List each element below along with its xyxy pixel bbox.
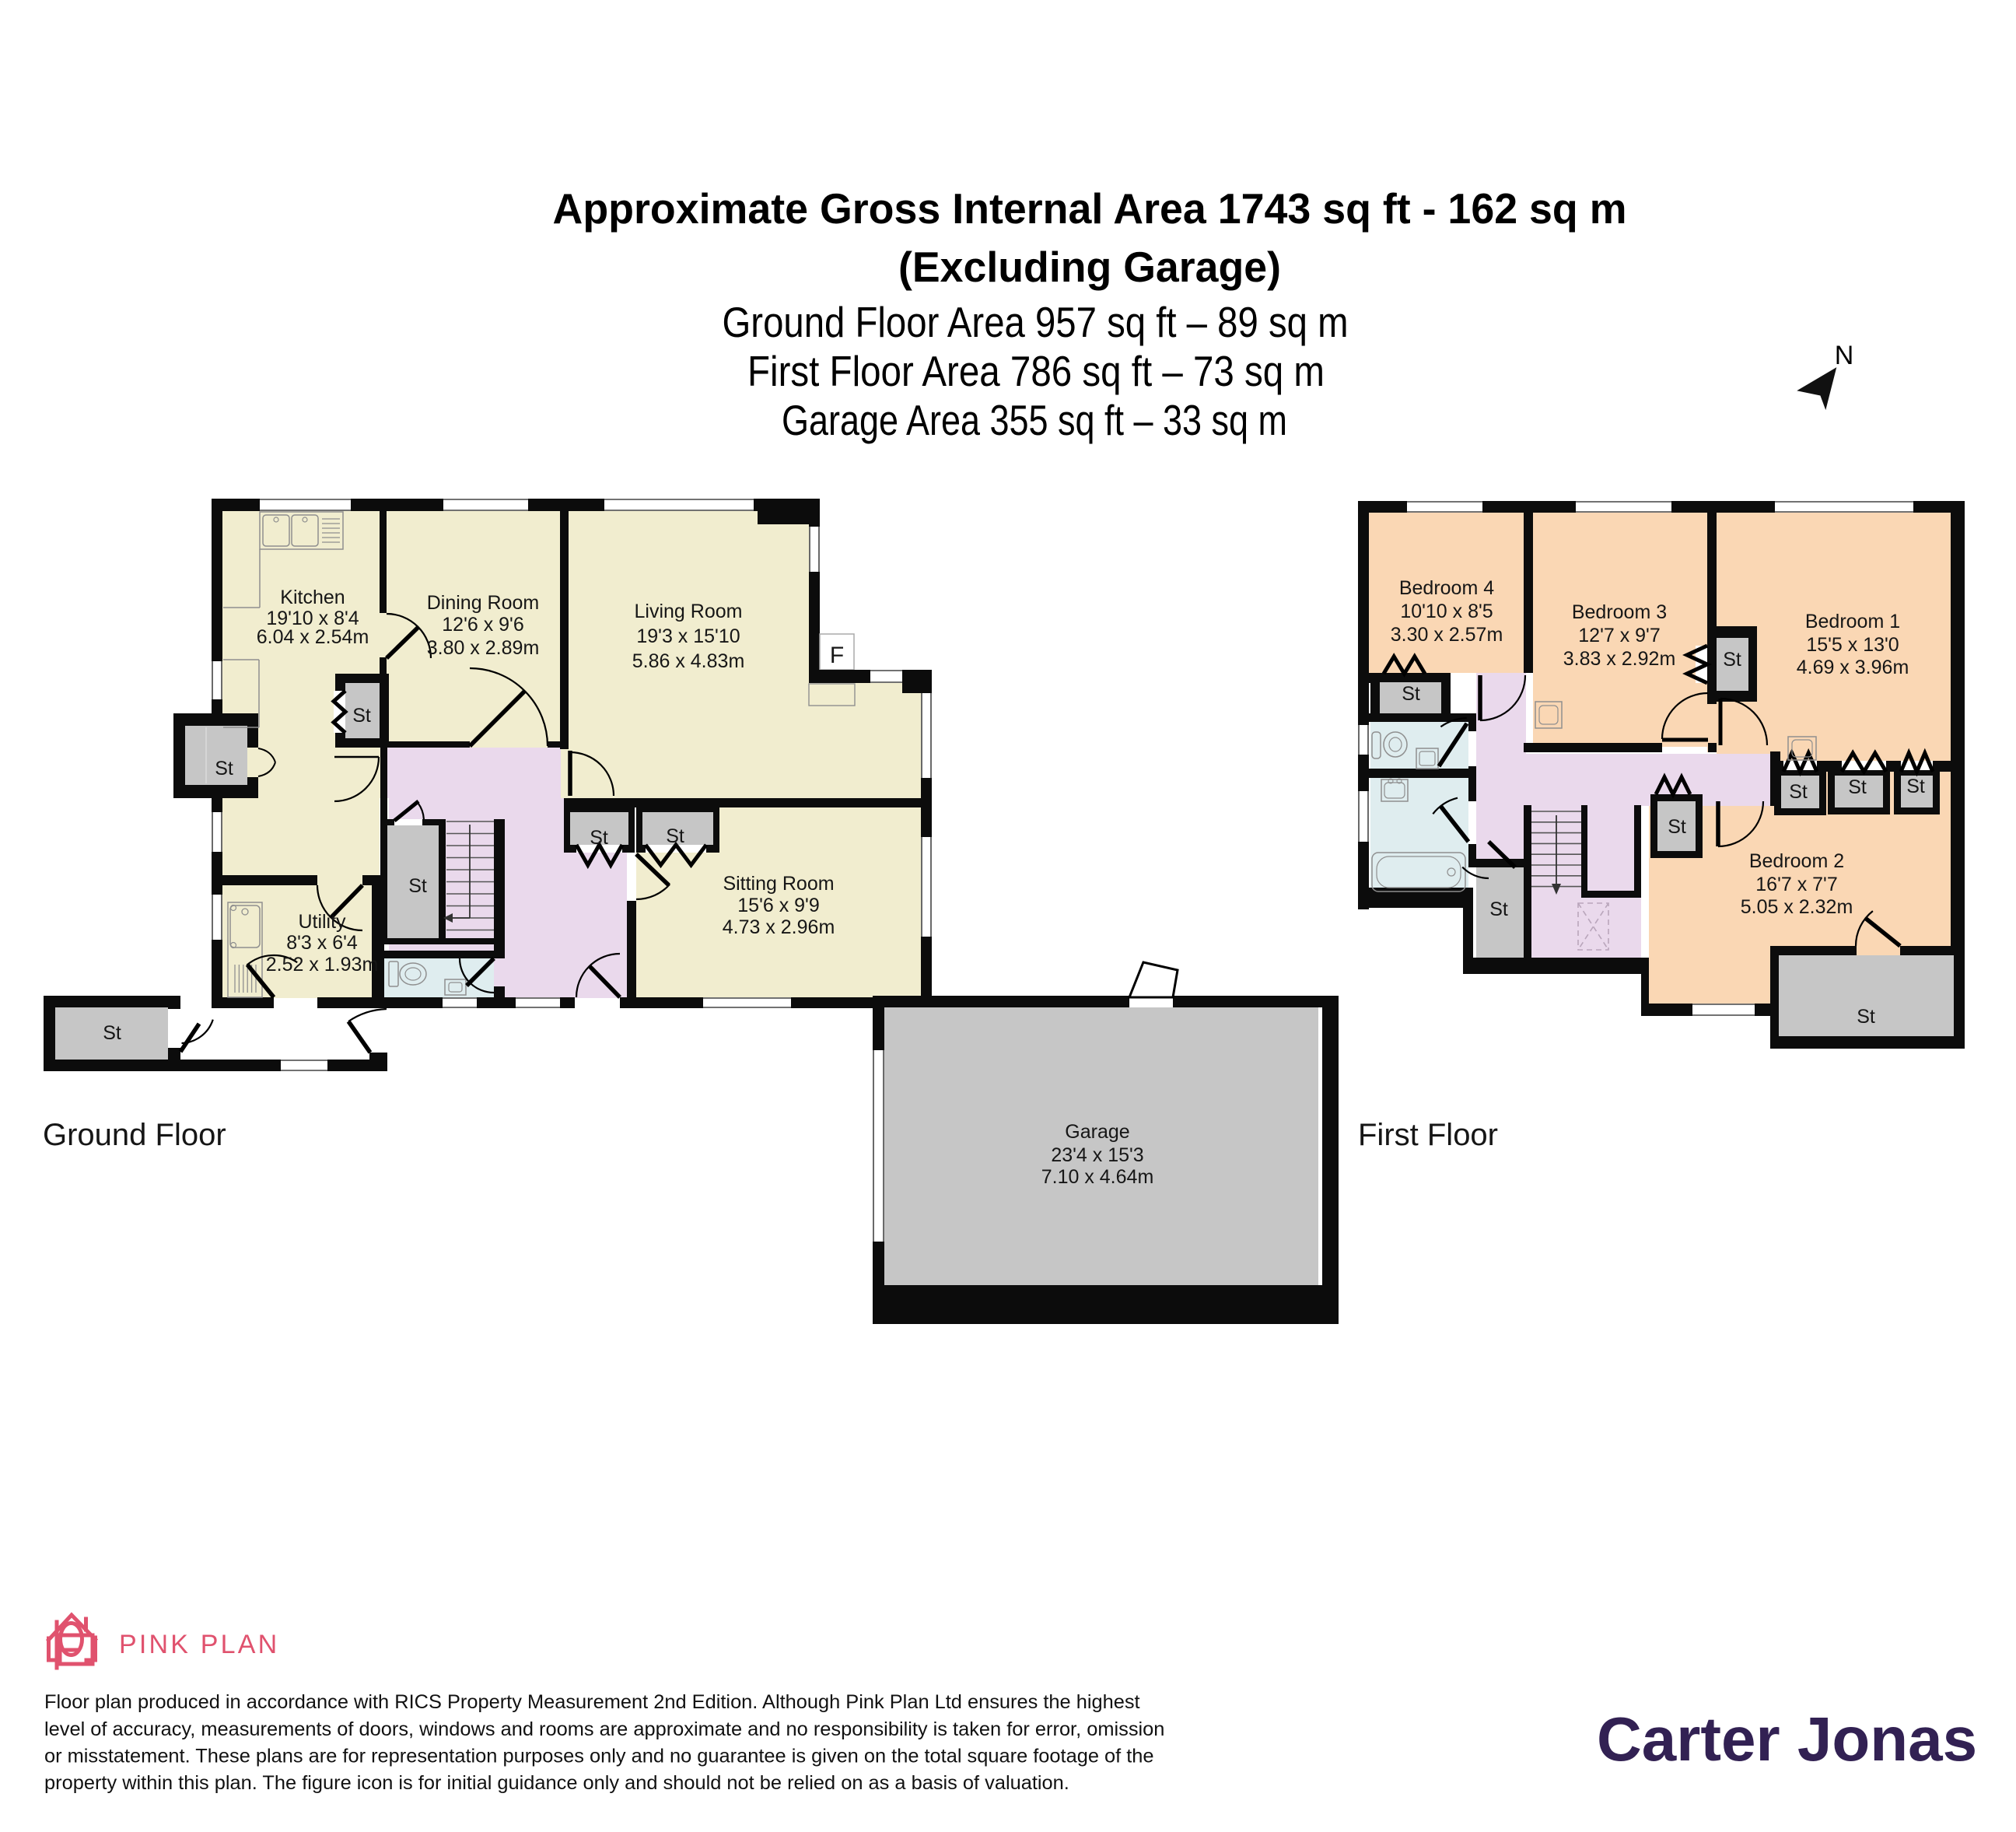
- svg-text:St: St: [1489, 898, 1508, 920]
- svg-text:7.10 x 4.64m: 7.10 x 4.64m: [1041, 1166, 1154, 1188]
- svg-text:Garage: Garage: [1065, 1121, 1129, 1143]
- svg-text:Living Room: Living Room: [635, 601, 743, 622]
- svg-text:Carter Jonas: Carter Jonas: [1597, 1704, 1977, 1774]
- svg-text:Garage Area 355 sq ft – 33 sq: Garage Area 355 sq ft – 33 sq m: [782, 396, 1287, 444]
- svg-text:Bedroom 4: Bedroom 4: [1399, 577, 1494, 599]
- svg-text:2.52 x 1.93m: 2.52 x 1.93m: [266, 954, 379, 976]
- svg-text:St: St: [666, 825, 684, 847]
- svg-text:Ground Floor: Ground Floor: [43, 1118, 226, 1152]
- svg-text:4.73 x 2.96m: 4.73 x 2.96m: [723, 916, 835, 938]
- svg-text:5.86 x 4.83m: 5.86 x 4.83m: [632, 650, 745, 672]
- svg-text:level of accuracy, measurement: level of accuracy, measurements of doors…: [44, 1718, 1164, 1740]
- svg-text:8'3 x 6'4: 8'3 x 6'4: [286, 932, 358, 954]
- svg-text:Kitchen: Kitchen: [280, 587, 345, 608]
- svg-text:Dining Room: Dining Room: [427, 592, 540, 614]
- svg-text:19'3 x 15'10: 19'3 x 15'10: [636, 625, 740, 647]
- svg-text:16'7 x 7'7: 16'7 x 7'7: [1755, 874, 1837, 895]
- svg-text:15'5 x 13'0: 15'5 x 13'0: [1806, 634, 1899, 656]
- svg-text:St: St: [1906, 776, 1925, 797]
- svg-text:12'7 x 9'7: 12'7 x 9'7: [1578, 625, 1660, 646]
- svg-text:5.05 x 2.32m: 5.05 x 2.32m: [1741, 896, 1853, 918]
- svg-text:St: St: [590, 827, 608, 849]
- svg-text:St: St: [103, 1022, 121, 1044]
- svg-text:property within this plan. The: property within this plan. The figure ic…: [44, 1772, 1069, 1794]
- svg-text:St: St: [1723, 649, 1741, 671]
- svg-text:6.04 x 2.54m: 6.04 x 2.54m: [257, 626, 369, 648]
- svg-text:St: St: [352, 705, 371, 727]
- svg-text:4.69 x 3.96m: 4.69 x 3.96m: [1797, 657, 1909, 678]
- svg-text:PINK PLAN: PINK PLAN: [119, 1630, 279, 1659]
- svg-text:St: St: [1668, 816, 1686, 838]
- svg-text:Approximate Gross Internal Are: Approximate Gross Internal Area 1743 sq …: [553, 184, 1627, 233]
- svg-text:St: St: [1848, 776, 1867, 798]
- svg-text:23'4 x 15'3: 23'4 x 15'3: [1051, 1144, 1143, 1166]
- svg-text:3.83 x 2.92m: 3.83 x 2.92m: [1563, 648, 1676, 670]
- svg-text:Bedroom 1: Bedroom 1: [1805, 611, 1900, 632]
- svg-text:St: St: [1857, 1006, 1875, 1028]
- svg-text:N: N: [1835, 341, 1854, 370]
- svg-text:Bedroom 2: Bedroom 2: [1749, 850, 1844, 872]
- svg-text:St: St: [408, 875, 427, 897]
- svg-text:or misstatement. These plans a: or misstatement. These plans are for rep…: [44, 1746, 1154, 1767]
- svg-text:Utility: Utility: [298, 911, 346, 933]
- svg-text:St: St: [1789, 781, 1808, 803]
- svg-text:Ground Floor Area 957 sq ft –: Ground Floor Area 957 sq ft – 89 sq m: [723, 298, 1349, 346]
- svg-text:3.30 x 2.57m: 3.30 x 2.57m: [1391, 624, 1503, 646]
- svg-text:First Floor Area 786 sq ft – 7: First Floor Area 786 sq ft – 73 sq m: [747, 347, 1325, 395]
- svg-text:Sitting Room: Sitting Room: [723, 873, 834, 895]
- svg-text:St: St: [1402, 683, 1420, 705]
- svg-text:(Excluding Garage): (Excluding Garage): [898, 243, 1281, 291]
- svg-text:12'6 x 9'6: 12'6 x 9'6: [442, 614, 523, 636]
- svg-text:15'6 x 9'9: 15'6 x 9'9: [737, 895, 819, 916]
- svg-text:Bedroom 3: Bedroom 3: [1572, 601, 1667, 623]
- svg-text:St: St: [215, 758, 233, 779]
- svg-text:3.80 x 2.89m: 3.80 x 2.89m: [427, 637, 540, 659]
- svg-text:10'10 x 8'5: 10'10 x 8'5: [1400, 601, 1493, 622]
- svg-text:F: F: [830, 643, 844, 668]
- svg-text:Floor plan produced in accorda: Floor plan produced in accordance with R…: [44, 1691, 1140, 1713]
- svg-text:First Floor: First Floor: [1358, 1118, 1498, 1152]
